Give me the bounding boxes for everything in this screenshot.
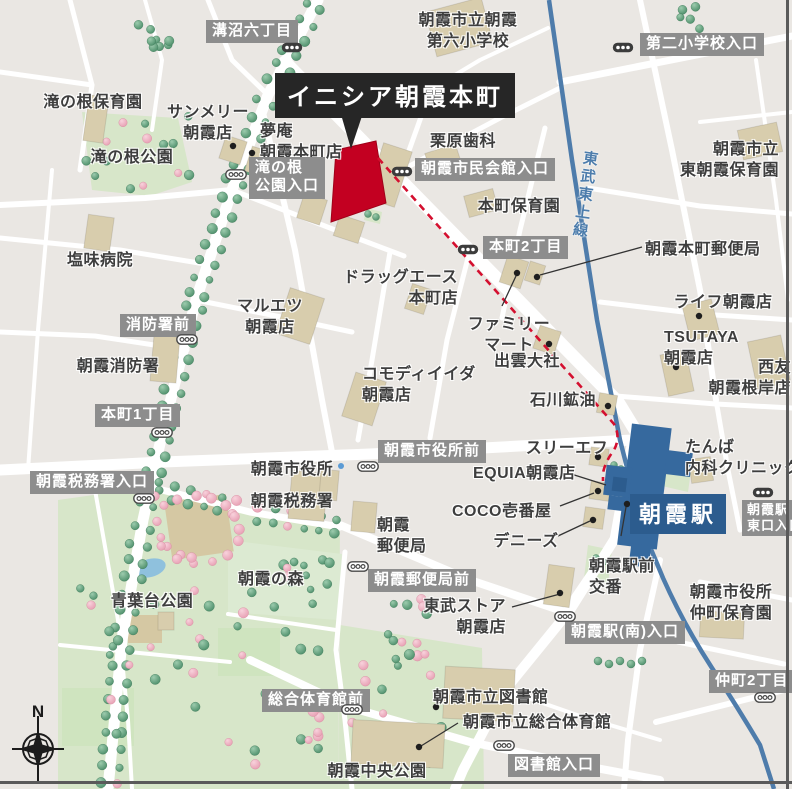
poi-dot: [416, 744, 422, 750]
place-label-shiomi-hospital: 塩味病院: [67, 250, 133, 271]
place-label-three-f: スリーエフ: [526, 438, 609, 459]
place-label-asaka-chuo-park: 朝霞中央公園: [327, 761, 426, 782]
place-label-ekimae-koban: 朝霞駅前交番: [589, 556, 655, 598]
bus-stop-icon-toshokan-iriguchi: [493, 738, 515, 749]
place-label-coco-ichibanya: COCO壱番屋: [452, 501, 552, 522]
place-label-asaka-fire-station: 朝霞消防署: [77, 356, 160, 377]
place-label-sunmerry-asaka: サンメリー朝霞店: [167, 102, 249, 144]
bus-stop-label-minami-iriguchi: 朝霞駅(南)入口: [565, 621, 685, 644]
map-border-right: [786, 0, 789, 789]
place-label-drug-ace-honcho: ドラッグエース本町店: [343, 267, 458, 309]
place-label-maruetsu-asaka: マルエツ朝霞店: [237, 296, 303, 338]
place-label-asaka-no-mori: 朝霞の森: [238, 569, 304, 590]
bus-stop-label-shiyakusho-mae: 朝霞市役所前: [378, 440, 486, 463]
equia-station-building: [612, 477, 628, 493]
bus-stop-icon-takinone-koen-iriguchi: [225, 167, 247, 178]
bus-stop-icon-daini-shogakko-iriguchi: [612, 40, 634, 51]
property-title-label: イニシア朝霞本町: [275, 73, 515, 118]
poi-dot: [557, 590, 563, 596]
bus-stop-label-takinone-koen-iriguchi: 滝の根公園入口: [249, 157, 325, 199]
place-label-dennys: デニーズ: [493, 531, 558, 552]
station-label: 朝霞駅: [630, 494, 726, 534]
bus-stop-label-honcho-2-chome: 本町2丁目: [483, 236, 568, 259]
place-label-asaka-post-office: 朝霞郵便局: [377, 515, 427, 557]
place-label-asakahoncho-post-office: 朝霞本町郵便局: [645, 239, 761, 260]
bus-stop-label-nakacho-2-chome: 仲町2丁目: [709, 670, 792, 693]
bus-stop-icon-shimin-kaikan-iriguchi: [391, 164, 413, 175]
place-label-takinone-park: 滝の根公園: [91, 147, 174, 168]
bus-stop-icon-sogo-taiikukan-mae: [341, 702, 363, 713]
place-label-seiyu-asakanegishi: 西友朝霞根岸店: [708, 357, 791, 399]
place-label-kurihara-dental: 栗原歯科: [430, 131, 496, 152]
place-label-tobu-store: 東武ストア朝霞店: [423, 596, 506, 638]
bus-stop-label-daini-shogakko-iriguchi: 第二小学校入口: [640, 33, 764, 56]
bus-stop-icon-minami-iriguchi: [554, 609, 576, 620]
bus-stop-icon-honcho-2-chome: [457, 242, 479, 253]
bus-stop-icon-honcho-1-chome: [151, 425, 173, 436]
poi-dot: [514, 270, 520, 276]
bus-stop-icon-shobosho-mae: [176, 332, 198, 343]
place-label-asaka-city-hall: 朝霞市役所: [251, 459, 334, 480]
compass-rose: [12, 716, 64, 782]
place-label-equia-asaka: EQUIA朝霞店: [473, 463, 576, 484]
place-label-aobadai-park: 青葉台公園: [111, 591, 194, 612]
bus-stop-label-yubinkyoku-mae: 朝霞郵便局前: [368, 569, 476, 592]
compass-north-label: N: [32, 702, 44, 722]
access-map: イニシア朝霞本町 朝霞駅 東武東上線 N 朝霞市立朝霞第六小学校滝の根保育園サン…: [0, 0, 792, 789]
bus-stop-label-higashiguchi-iriguchi: 朝霞駅東口入口: [742, 500, 792, 536]
place-label-takinone-nursery: 滝の根保育園: [43, 92, 142, 113]
city-hall-marker: [338, 463, 344, 469]
poi-dot: [249, 150, 255, 156]
place-label-asaka-library: 朝霞市立図書館: [433, 687, 549, 708]
place-label-asaka-tax-office: 朝霞税務署: [251, 491, 334, 512]
bus-stop-label-shimin-kaikan-iriguchi: 朝霞市民会館入口: [415, 158, 555, 181]
place-label-ishikawa-koyu: 石川鉱油: [530, 390, 596, 411]
poi-dot: [595, 488, 601, 494]
poi-dot: [605, 403, 611, 409]
bus-stop-label-toshokan-iriguchi: 図書館入口: [508, 754, 600, 777]
place-label-izumo-taisha: 出雲大社: [494, 351, 560, 372]
poi-dot: [534, 274, 540, 280]
bus-stop-icon-yubinkyoku-mae: [347, 559, 369, 570]
map-border-bottom: [0, 781, 792, 784]
place-label-family-mart: ファミリーマート: [468, 314, 551, 356]
place-label-komodi-iida: コモディイイダ朝霞店: [362, 364, 476, 406]
poi-dot: [590, 517, 596, 523]
place-label-honcho-nursery: 本町保育園: [478, 196, 561, 217]
bus-stop-icon-nakacho-2-chome: [754, 690, 776, 701]
place-label-higashi-asaka-nursery: 朝霞市立東朝霞保育園: [680, 139, 779, 181]
place-label-life-asaka: ライフ朝霞店: [673, 292, 772, 313]
bus-stop-icon-mizonuma-6: [281, 40, 303, 51]
place-label-asaka-dairoku-elementary: 朝霞市立朝霞第六小学校: [418, 10, 517, 52]
bus-stop-icon-higashiguchi-iriguchi: [752, 485, 774, 496]
bus-stop-icon-zeimusho-iriguchi: [133, 491, 155, 502]
place-label-tanba-clinic: たんば内科クリニック: [685, 437, 792, 479]
bus-stop-icon-shiyakusho-mae: [357, 459, 379, 470]
place-label-nakacho-nursery: 朝霞市役所仲町保育園: [690, 582, 773, 624]
place-label-asaka-gymnasium: 朝霞市立総合体育館: [463, 712, 612, 733]
poi-dot: [696, 313, 702, 319]
